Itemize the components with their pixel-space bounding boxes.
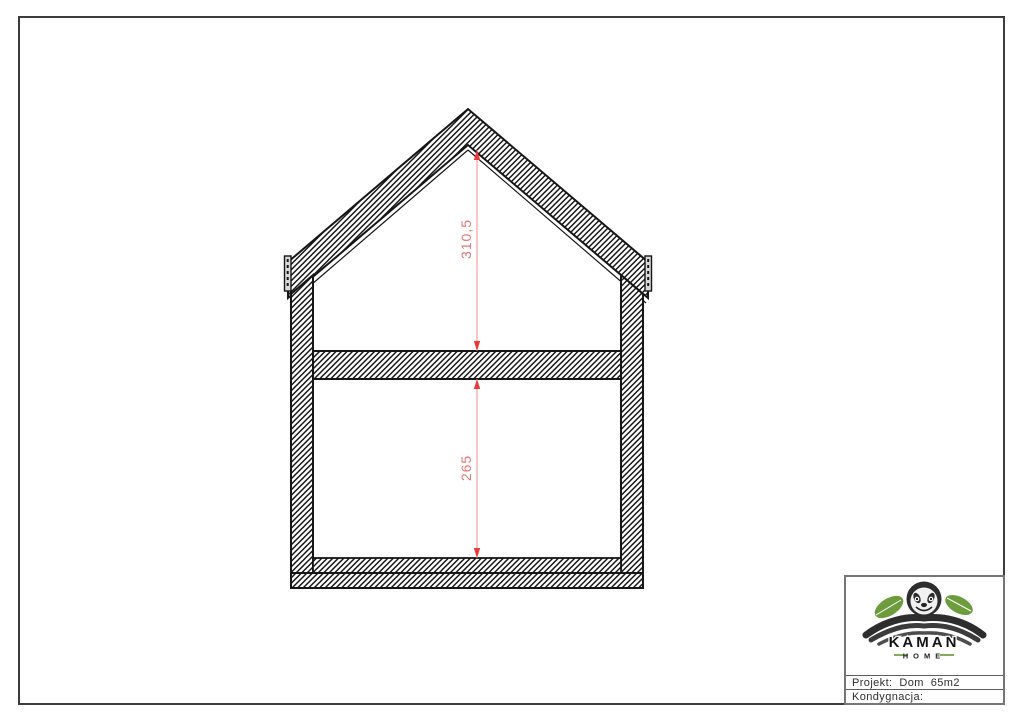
drawing-sheet: 310,5 265 — [0, 0, 1024, 724]
project-label: Projekt: Dom 65m2 — [852, 677, 960, 689]
dimension-arrow-down-icon — [474, 548, 480, 558]
dimension-ground-height: 265 — [458, 379, 480, 558]
dimension-arrow-up-icon — [474, 379, 480, 389]
company-logo: KAMAN HOME — [846, 577, 1003, 675]
sloth-head — [907, 582, 942, 617]
sloth-icon: KAMAN HOME — [846, 577, 1003, 675]
title-block: KAMAN HOME Projekt: Dom 65m2 Kondygnacja… — [844, 575, 1005, 705]
left-wall — [291, 275, 313, 573]
roof — [288, 109, 648, 298]
logo-subtitle-text: HOME — [903, 652, 946, 661]
logo-brand-text: KAMAN — [889, 634, 960, 651]
dimension-label-attic: 310,5 — [458, 219, 474, 259]
fascia-left — [285, 256, 292, 291]
dimension-arrow-down-icon — [474, 341, 480, 351]
foundation-slab — [291, 573, 643, 588]
right-wall — [621, 275, 643, 573]
floor-slab — [313, 558, 621, 573]
fascia-right — [645, 256, 652, 291]
title-block-row-project: Projekt: Dom 65m2 — [846, 675, 1003, 689]
ceiling-slab — [313, 351, 621, 379]
storey-label: Kondygnacja: — [852, 691, 923, 703]
title-block-row-storey: Kondygnacja: — [846, 689, 1003, 703]
dimension-label-ground: 265 — [458, 455, 474, 481]
dimension-attic-height: 310,5 — [458, 150, 480, 351]
